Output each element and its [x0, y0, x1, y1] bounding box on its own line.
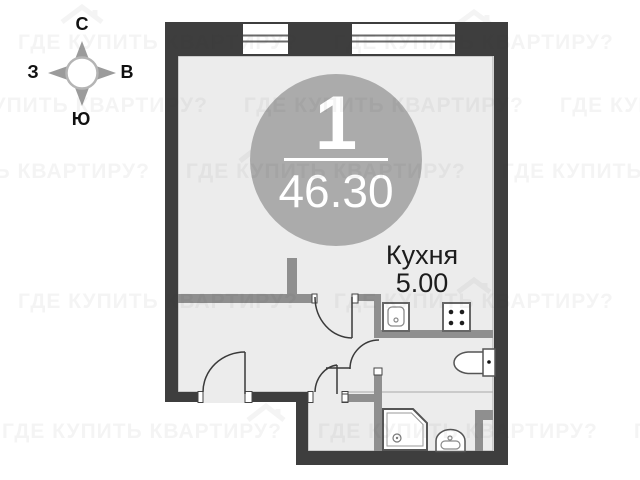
- window-1: [243, 24, 288, 54]
- wall-hall-top: [178, 294, 312, 303]
- shower-cabin: [383, 409, 427, 450]
- unit-badge: 1 46.30: [250, 74, 422, 246]
- wall-bath-left: [374, 375, 382, 451]
- house-icon: [248, 406, 284, 420]
- wall-shaft-left: [475, 420, 483, 451]
- compass-circle: [67, 58, 98, 89]
- kitchen-label: Кухня 5.00: [366, 241, 478, 297]
- badge-divider: [284, 158, 388, 161]
- wall-bottom: [296, 451, 508, 465]
- wall-kitchen-left: [374, 294, 381, 334]
- wall-stub: [287, 258, 297, 294]
- washbasin: [436, 430, 465, 452]
- kitchen-area: 5.00: [366, 269, 478, 297]
- wall-shaft-top: [475, 410, 493, 420]
- compass-east-label: В: [116, 62, 138, 83]
- unit-number: 1: [250, 86, 422, 162]
- wall-right: [494, 22, 508, 465]
- floor-plan: 1 46.30 Кухня 5.00 С З В Ю ГДЕ КУПИТЬ КВ…: [0, 0, 640, 480]
- kitchen-sink: [383, 303, 409, 331]
- compass-west-label: З: [22, 62, 44, 83]
- window-2: [352, 24, 455, 54]
- stove: [443, 303, 470, 331]
- wall-left: [165, 22, 178, 402]
- wall-closet-top: [348, 394, 374, 402]
- total-area: 46.30: [250, 168, 422, 214]
- compass-rose: [48, 41, 116, 106]
- compass-north-label: С: [71, 14, 93, 35]
- kitchen-name: Кухня: [366, 241, 478, 269]
- entry-door-opening: [198, 391, 252, 403]
- compass-south-label: Ю: [70, 109, 92, 130]
